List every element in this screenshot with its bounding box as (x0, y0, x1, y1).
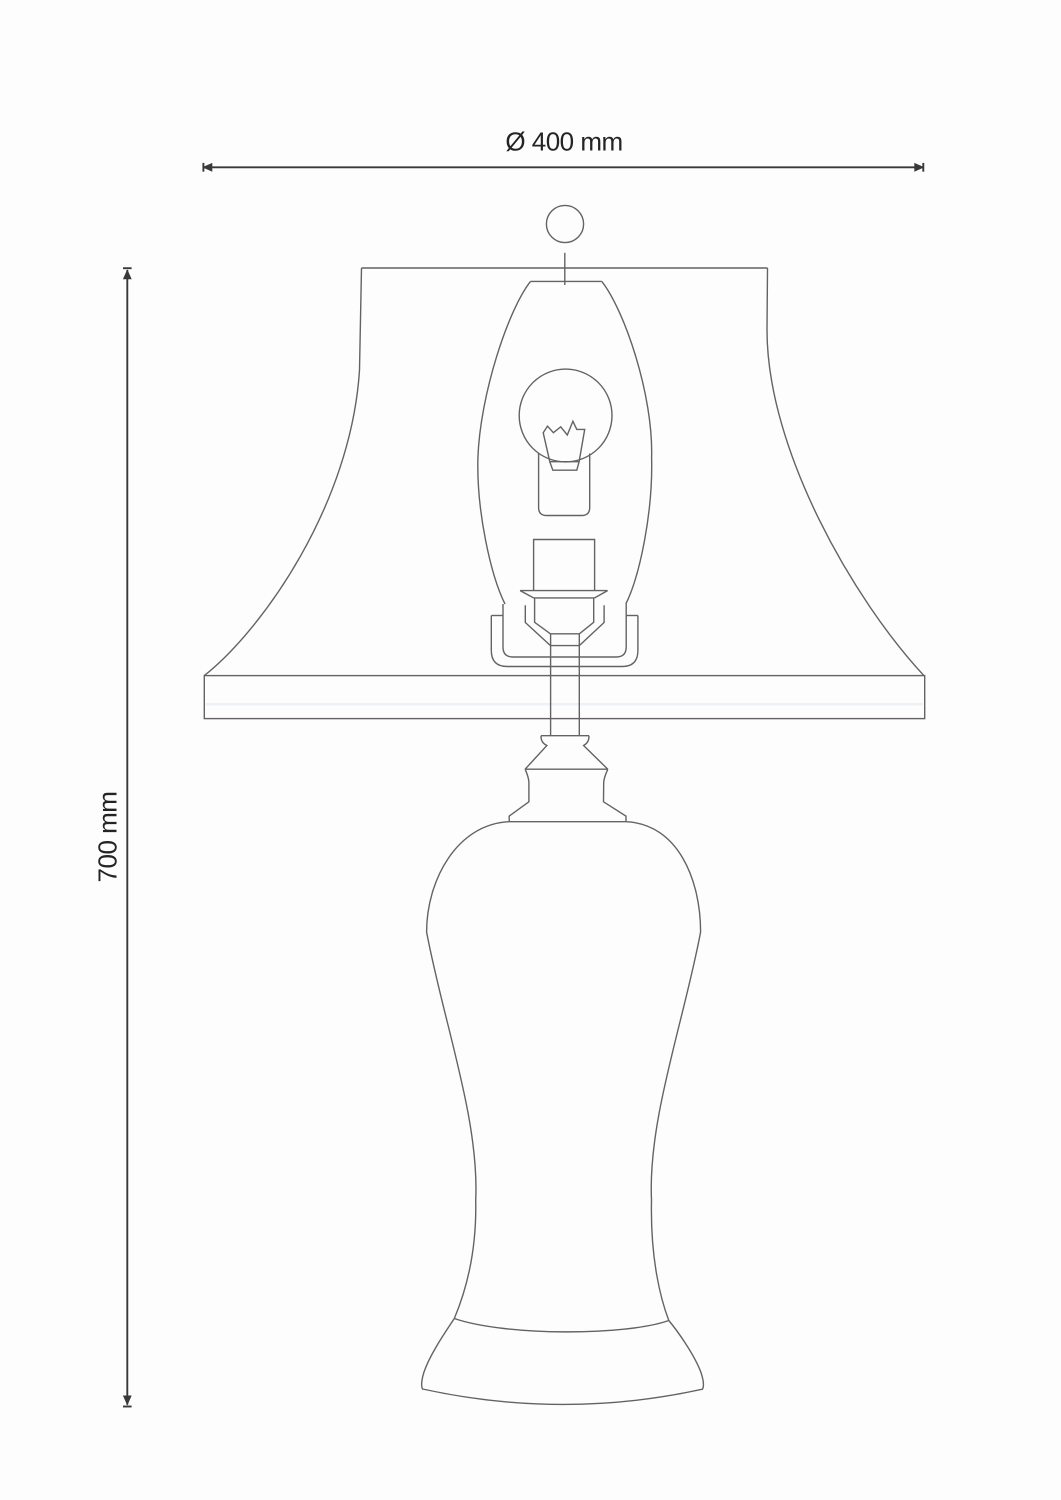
svg-text:Ø 400 mm: Ø 400 mm (505, 127, 622, 157)
svg-text:700 mm: 700 mm (93, 792, 123, 883)
